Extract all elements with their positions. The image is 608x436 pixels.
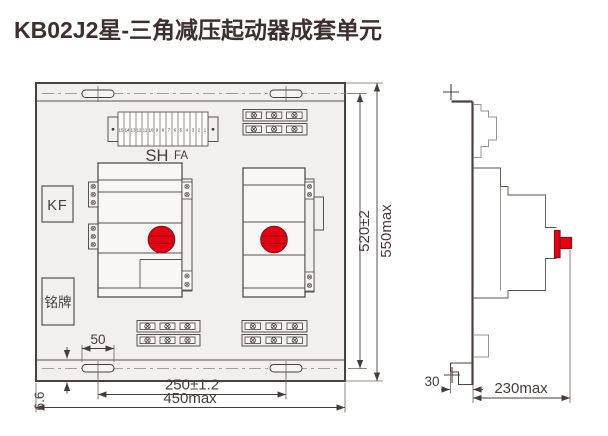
- page: KB02J2星-三角减压起动器成套单元 15 14 13: [0, 0, 608, 436]
- page-title: KB02J2星-三角减压起动器成套单元: [14, 17, 382, 43]
- terminal-number: 14: [125, 127, 130, 132]
- contactor-left: [89, 163, 193, 297]
- terminal-number: 12: [137, 127, 142, 132]
- nameplate-label: 铭牌: [45, 294, 72, 310]
- side-accessory: [314, 197, 324, 230]
- centermark-bottom: [444, 367, 460, 383]
- label-sh: SH: [146, 147, 169, 165]
- red-button: [148, 226, 174, 252]
- dim-height-max: 550max: [378, 204, 395, 258]
- endcap-screw-icon: [212, 128, 215, 131]
- profile-foot: [451, 363, 474, 385]
- terminal-number: 10: [149, 127, 154, 132]
- terminal-numbers: 15 14 13 12 11 10 9 8 7 6 5 4 3 2 1: [119, 127, 207, 132]
- terminal-number: 13: [131, 127, 136, 132]
- profile-terminal-strip: [473, 105, 497, 158]
- label-fa: FA: [174, 150, 188, 162]
- endcap-screw-icon: [112, 128, 115, 131]
- red-button-side: [555, 231, 572, 258]
- red-button: [261, 226, 287, 252]
- side-view: 30 230max: [424, 84, 571, 403]
- technical-drawing: KB02J2星-三角减压起动器成套单元 15 14 13: [0, 0, 608, 436]
- dim-hole-pitch-v: 520±2: [356, 210, 373, 252]
- terminal-number: 11: [143, 127, 148, 132]
- dim-depth-max: 230max: [494, 380, 548, 397]
- dim-width-max: 450max: [163, 390, 217, 407]
- terminal-number: 15: [119, 127, 124, 132]
- profile-bottom-block: [473, 335, 489, 357]
- dim-foot-depth: 30: [424, 374, 439, 389]
- kf-label: KF: [47, 198, 68, 214]
- front-view: 15 14 13 12 11 10 9 8 7 6 5 4 3 2 1 SH F…: [36, 83, 353, 381]
- centermark-top: [443, 84, 459, 100]
- contactor-right: [243, 168, 324, 297]
- profile-contactor: [473, 168, 557, 298]
- dim-slot-width: 50: [90, 332, 105, 347]
